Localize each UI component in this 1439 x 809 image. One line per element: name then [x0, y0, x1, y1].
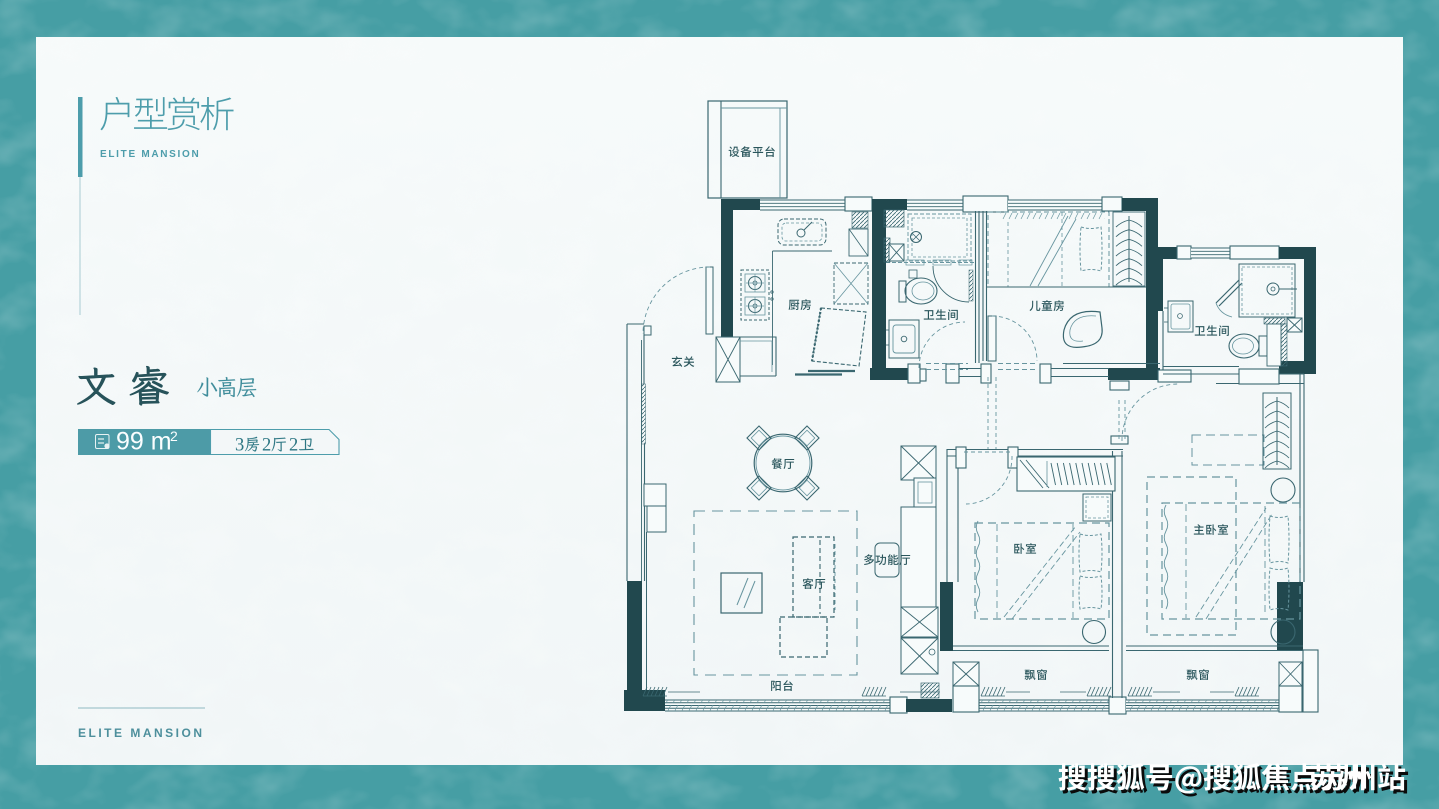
svg-text:2: 2 [170, 428, 178, 444]
svg-text:2: 2 [289, 436, 298, 456]
svg-text:2: 2 [262, 436, 271, 456]
svg-text:ELITE MANSION: ELITE MANSION [78, 726, 205, 740]
svg-text:3: 3 [235, 436, 244, 456]
svg-text:99 m: 99 m [116, 428, 172, 456]
svg-text:ELITE MANSION: ELITE MANSION [100, 149, 200, 160]
